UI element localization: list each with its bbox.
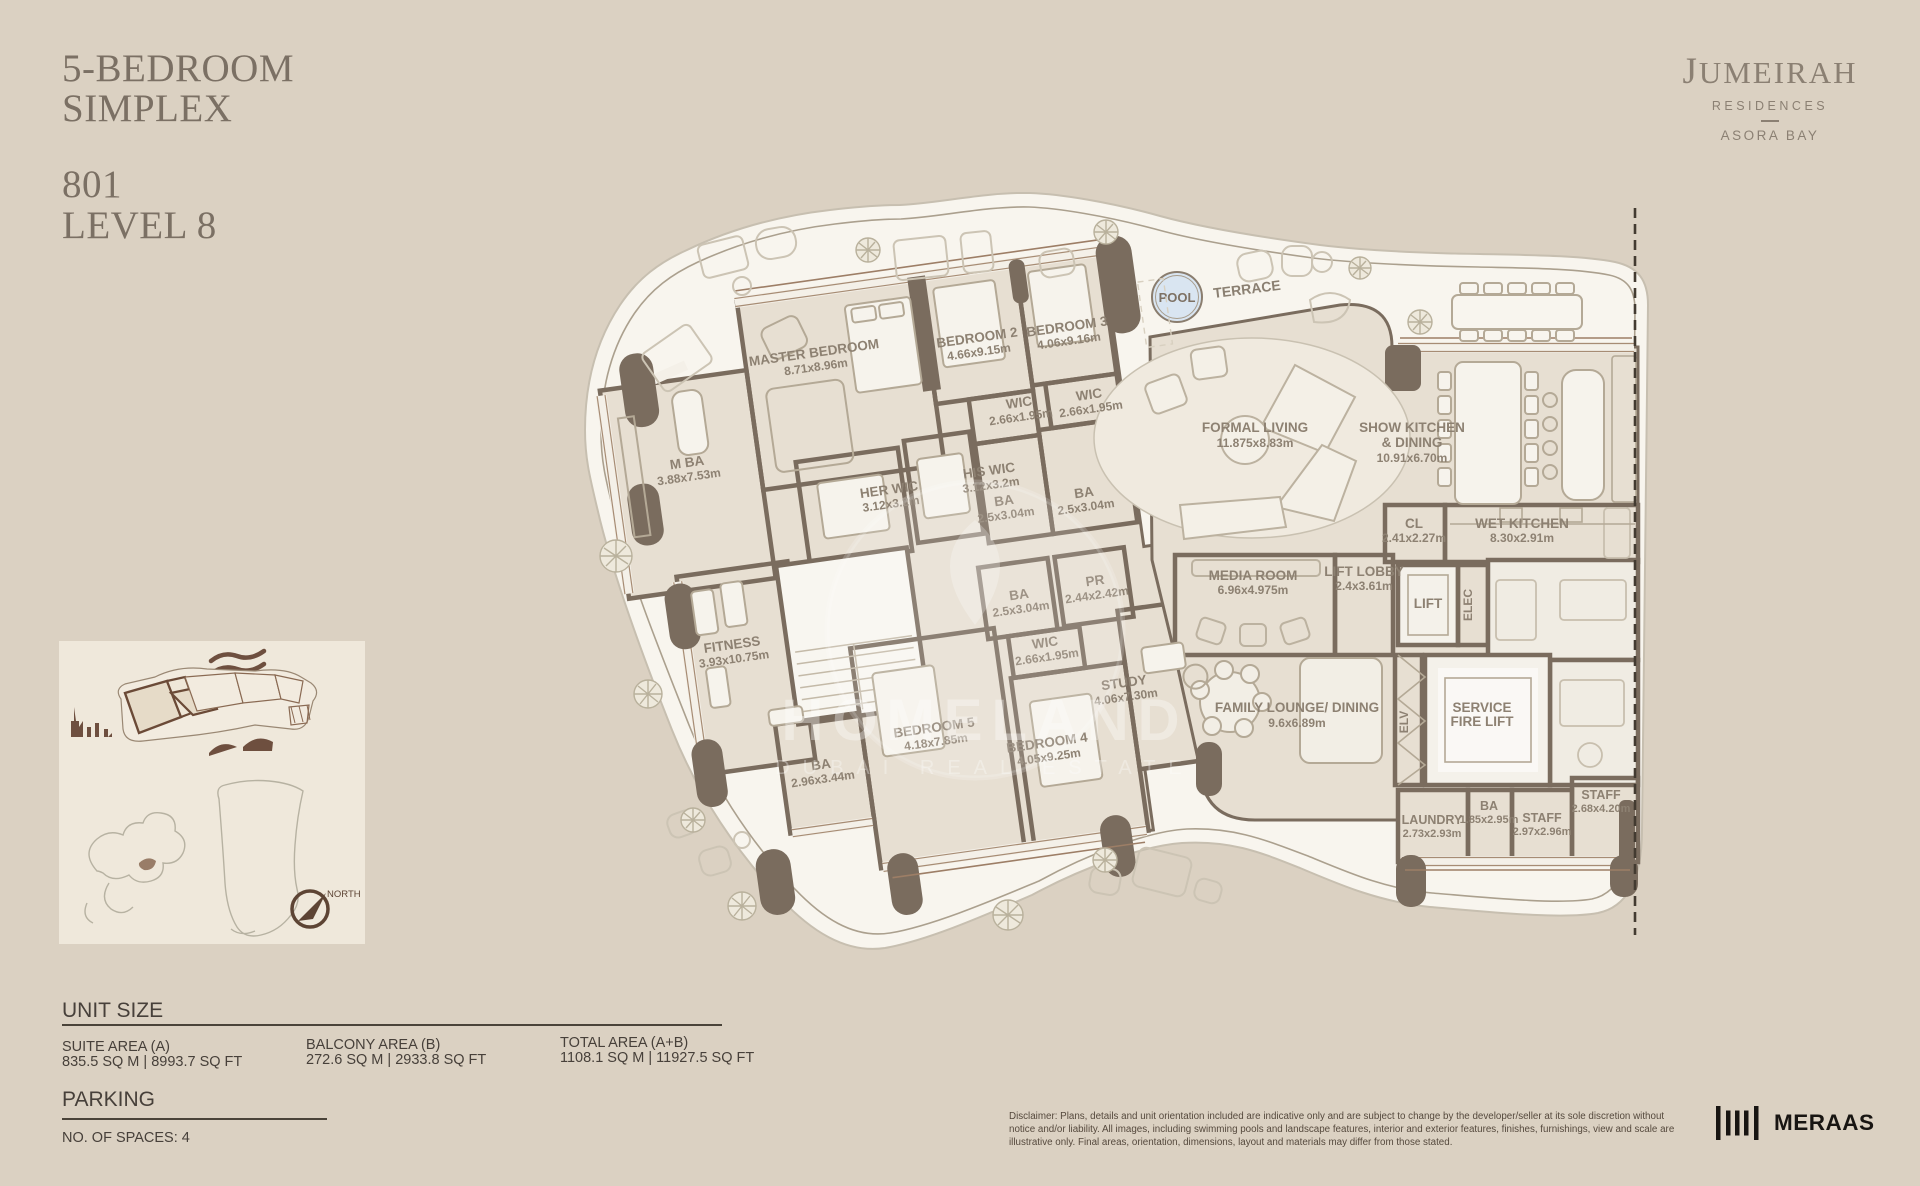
svg-text:FORMAL LIVING: FORMAL LIVING: [1202, 420, 1308, 435]
svg-text:11.875x8.83m: 11.875x8.83m: [1217, 436, 1294, 450]
svg-text:HOMELAND: HOMELAND: [781, 688, 1188, 753]
svg-text:LIFT LOBBY: LIFT LOBBY: [1324, 564, 1404, 579]
svg-text:NORTH: NORTH: [327, 889, 361, 900]
svg-text:SERVICE: SERVICE: [1452, 700, 1511, 715]
svg-text:POOL: POOL: [1159, 290, 1196, 305]
svg-text:FAMILY LOUNGE/ DINING: FAMILY LOUNGE/ DINING: [1215, 700, 1379, 715]
svg-text:8.30x2.91m: 8.30x2.91m: [1490, 531, 1554, 545]
svg-text:10.91x6.70m: 10.91x6.70m: [1377, 451, 1448, 465]
svg-text:STAFF: STAFF: [1581, 788, 1621, 802]
svg-text:FIRE LIFT: FIRE LIFT: [1451, 714, 1515, 729]
svg-text:WET KITCHEN: WET KITCHEN: [1475, 516, 1569, 531]
svg-text:2.97x2.96m: 2.97x2.96m: [1513, 826, 1572, 838]
svg-text:ELV: ELV: [1397, 711, 1411, 733]
svg-text:LIFT: LIFT: [1414, 596, 1443, 611]
svg-text:1.85x2.95m: 1.85x2.95m: [1460, 814, 1519, 826]
svg-text:LAUNDRY: LAUNDRY: [1402, 813, 1463, 827]
svg-text:2.41x2.27m: 2.41x2.27m: [1382, 531, 1446, 545]
svg-text:2.4x3.61m: 2.4x3.61m: [1335, 579, 1392, 593]
svg-text:MEDIA ROOM: MEDIA ROOM: [1209, 568, 1298, 583]
svg-text:BA: BA: [1480, 799, 1498, 813]
svg-text:CL: CL: [1405, 516, 1423, 531]
svg-text:ELEC: ELEC: [1461, 589, 1475, 621]
svg-text:& DINING: & DINING: [1382, 435, 1443, 450]
svg-text:SHOW KITCHEN: SHOW KITCHEN: [1359, 420, 1465, 435]
svg-text:2.73x2.93m: 2.73x2.93m: [1403, 828, 1462, 840]
svg-text:STAFF: STAFF: [1522, 811, 1562, 825]
svg-text:9.6x6.89m: 9.6x6.89m: [1268, 716, 1325, 730]
svg-text:6.96x4.975m: 6.96x4.975m: [1218, 583, 1289, 597]
svg-text:2.68x4.20m: 2.68x4.20m: [1572, 803, 1631, 815]
svg-text:DUBAI REAL ESTATE: DUBAI REAL ESTATE: [775, 757, 1195, 779]
